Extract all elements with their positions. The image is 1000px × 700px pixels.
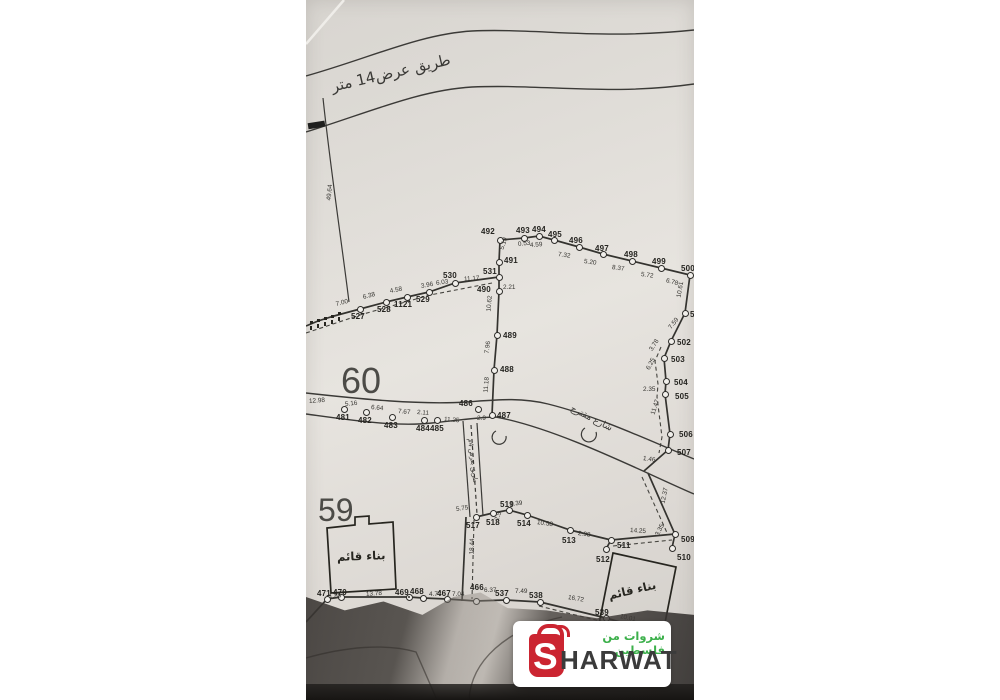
survey-point-511: [608, 537, 615, 544]
distance-label: 10.61: [676, 281, 686, 298]
survey-point-label: 503: [671, 355, 685, 364]
survey-point-label: 491: [504, 256, 518, 265]
survey-point-530: [452, 280, 459, 287]
survey-point-label: 531: [483, 267, 497, 276]
distance-label: 11.25: [444, 416, 460, 424]
survey-point-label: 529: [416, 295, 430, 304]
survey-point-label: 527: [351, 312, 365, 321]
map-photo: 5275281121529530531490492491493494495496…: [306, 0, 694, 700]
logo-brand: HARWAT: [560, 647, 678, 673]
survey-point-507: [665, 447, 672, 454]
survey-point-label: 486: [459, 399, 473, 408]
distance-label: 6.03: [436, 278, 449, 287]
survey-point-482: [363, 409, 370, 416]
distance-label: 7.00: [335, 298, 349, 308]
survey-point-label: 537: [495, 589, 509, 598]
distance-label: 2.9: [477, 415, 486, 422]
survey-point-504: [663, 378, 670, 385]
survey-point-label: 498: [624, 250, 638, 259]
distance-label: 4.59: [530, 241, 543, 249]
survey-point-514: [524, 512, 531, 519]
survey-point-label: 511: [617, 541, 631, 550]
distance-label: 7.32: [558, 251, 571, 260]
distance-label: 3.78: [648, 338, 661, 352]
survey-point-label: 538: [529, 591, 543, 600]
survey-point-label: 494: [532, 225, 546, 234]
survey-point-489: [494, 332, 501, 339]
survey-point-label: 493: [516, 226, 530, 235]
distance-label: 1.39: [510, 500, 523, 508]
survey-point-label: 500: [681, 264, 694, 273]
survey-point-510: [669, 545, 676, 552]
survey-point-label: 481: [336, 413, 350, 422]
survey-point-label: 484: [416, 424, 430, 433]
survey-point-505: [662, 391, 669, 398]
survey-point-502: [668, 338, 675, 345]
distance-label: 5.75: [456, 504, 469, 513]
distance-label: 10.58: [537, 519, 554, 528]
distance-label: 7.59: [667, 317, 680, 331]
survey-point-484: [421, 417, 428, 424]
distance-label: 5.72: [641, 271, 654, 280]
distance-label: 7.67: [398, 408, 411, 416]
survey-point-label: 487: [497, 411, 511, 420]
photo-space: 5275281121529530531490492491493494495496…: [306, 0, 694, 700]
distance-label: 3.35: [654, 523, 666, 537]
distance-label: 7.96: [484, 341, 493, 354]
distance-label: 6.37: [484, 587, 496, 594]
survey-point-517: [473, 514, 480, 521]
distance-label: 11.18: [483, 377, 491, 393]
distance-label: 10.62: [486, 295, 494, 312]
logo-letter-s: S: [533, 638, 558, 675]
survey-point-label: 490: [477, 285, 491, 294]
distance-label: 2.21: [503, 284, 515, 291]
survey-point-label: 469: [395, 588, 409, 597]
survey-point-label: 539: [595, 608, 609, 617]
survey-point-label: 509: [681, 535, 694, 544]
distance-label: 6.38: [362, 291, 376, 301]
distance-label: 14.25: [630, 527, 646, 535]
distance-label: 1.46: [643, 455, 656, 464]
survey-point-label: 510: [677, 553, 691, 562]
distance-label: 2.5: [494, 511, 503, 522]
survey-point-label: 496: [569, 236, 583, 245]
survey-point-506: [667, 431, 674, 438]
survey-point-487: [489, 412, 496, 419]
survey-point-label: 502: [677, 338, 691, 347]
survey-point-491: [496, 259, 503, 266]
survey-point-509: [672, 531, 679, 538]
survey-point-label: 497: [595, 244, 609, 253]
survey-point-label: 482: [358, 416, 372, 425]
distance-label: 16.72: [567, 594, 584, 604]
survey-point-label: 488: [500, 365, 514, 374]
survey-point-label: 505: [675, 392, 689, 401]
survey-point-label: 528: [377, 305, 391, 314]
distance-label: 2.98: [578, 530, 591, 539]
distance-label: 49.64: [326, 184, 335, 201]
survey-point-label: 483: [384, 421, 398, 430]
survey-point-512: [603, 546, 610, 553]
survey-point-488: [491, 367, 498, 374]
screenshot-root: 5275281121529530531490492491493494495496…: [0, 0, 1000, 700]
distance-label: 8.37: [612, 264, 625, 273]
survey-point-label: 466: [470, 583, 484, 592]
survey-point-label: 512: [596, 555, 610, 564]
survey-point-label: 517: [466, 521, 480, 530]
survey-point-513: [567, 527, 574, 534]
survey-point-490: [496, 288, 503, 295]
distance-label: 13.78: [366, 590, 382, 598]
distance-label: 0.53: [518, 240, 531, 248]
distance-label: 11.17: [464, 275, 480, 283]
distance-label: 5.20: [584, 258, 597, 267]
survey-point-label: 495: [548, 230, 562, 239]
survey-point-label: 506: [679, 430, 693, 439]
survey-point-label: 489: [503, 331, 517, 340]
survey-point-label: 1121: [394, 300, 412, 309]
distance-label: 18.44: [469, 538, 477, 554]
survey-point-501: [682, 310, 689, 317]
survey-point-label: 468: [410, 587, 424, 596]
parcel-number-59: 59: [318, 492, 354, 529]
distance-label: 6.64: [371, 404, 384, 412]
distance-label: 12.98: [309, 397, 325, 405]
survey-point-503: [661, 355, 668, 362]
building-label-1: بناء قائم: [337, 548, 386, 564]
survey-point-label: 485: [430, 424, 444, 433]
distance-label: 2.35: [643, 386, 655, 393]
parcel-number-60: 60: [341, 360, 381, 402]
distance-label: 2.11: [417, 409, 430, 417]
survey-point-label: 492: [481, 227, 495, 236]
survey-point-label: 499: [652, 257, 666, 266]
distance-label: 4.77: [429, 591, 441, 598]
distance-label: 3.96: [420, 281, 433, 290]
survey-point-label: 504: [674, 378, 688, 387]
survey-point-483: [389, 414, 396, 421]
survey-point-label: 513: [562, 536, 576, 545]
survey-point-label: 507: [677, 448, 691, 457]
survey-point-label: 501: [690, 310, 694, 319]
survey-point-485: [434, 417, 441, 424]
survey-point-486: [475, 406, 482, 413]
distance-label: 7.49: [515, 588, 527, 595]
sharwat-watermark: S شروات من فلسطين HARWAT: [513, 621, 671, 687]
distance-label: 1.85: [329, 592, 342, 600]
distance-label: 4.58: [389, 285, 403, 294]
distance-label: 6.25: [645, 357, 657, 371]
distance-label: 12.37: [660, 487, 670, 504]
survey-point-label: 514: [517, 519, 531, 528]
distance-label: 11.47: [650, 399, 661, 416]
